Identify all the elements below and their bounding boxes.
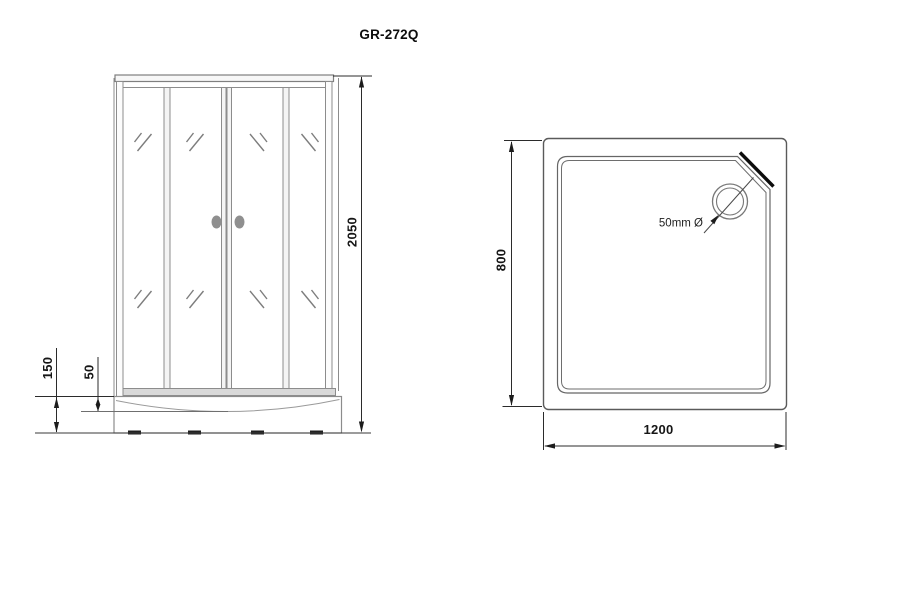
glass-shine-mark [302,290,319,308]
arrowhead-down [96,404,101,411]
arrowhead-down [509,395,514,406]
arrowhead-left [544,443,555,448]
door-center-stile-left [222,88,227,389]
door-divider-1 [164,88,170,389]
dimension-label-50: 50 [82,364,97,379]
tray-apron [114,397,342,434]
drawing-title: GR-272Q [359,27,418,42]
front-view: 2050 150 50 [35,75,372,435]
dimension-label-2050: 2050 [345,217,360,247]
arrowhead-up [509,141,514,152]
dimension-width: 1200 [544,412,787,450]
top-frame-bar [115,75,334,82]
frame-post-left [117,82,124,397]
shower-cabin-drawing: GR-272Q [0,0,907,596]
tray-outer-rim [544,139,787,410]
arrowhead-down [54,422,59,433]
door-divider-3 [283,88,289,389]
glass-shine-mark [250,290,267,308]
glass-shine-mark [187,290,204,308]
arrowhead-up [96,398,101,405]
arrowhead-up [54,398,59,409]
glass-shine-mark [250,133,267,151]
drain-diameter-label: 50mm Ø [659,218,703,230]
bottom-track [123,389,336,396]
glass-shine-mark [302,133,319,151]
frame-post-right [326,82,333,397]
dimension-depth: 800 [494,141,543,407]
dimension-base-height: 150 [35,348,114,433]
arrowhead-up [359,77,364,88]
dimension-label-800: 800 [494,249,509,272]
door-handle-right [235,216,245,229]
dimension-label-1200: 1200 [643,422,673,437]
top-view: 50mm Ø 800 1200 [494,139,787,451]
arrowhead-right [775,443,786,448]
glass-shine-mark [135,133,152,151]
glass-shine-mark [187,133,204,151]
arrowhead-down [359,422,364,433]
glass-shine-mark [135,290,152,308]
door-center-stile-right [227,88,232,389]
dimension-label-150: 150 [40,357,55,380]
door-handle-left [212,216,222,229]
technical-drawing-page: GR-272Q [0,0,907,596]
cabin-frame [114,75,339,397]
